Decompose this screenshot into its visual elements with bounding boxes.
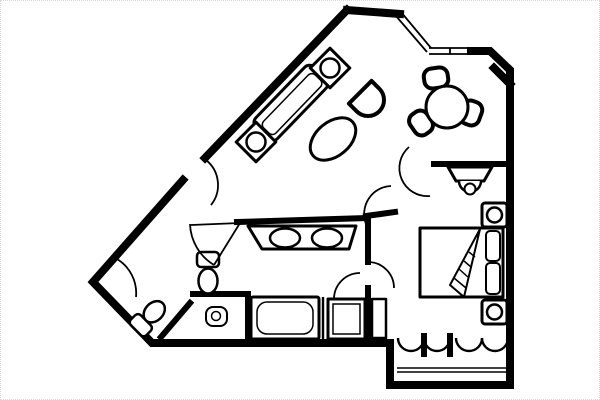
floor-plan-canvas (0, 0, 600, 400)
wc-door-swing (117, 259, 136, 297)
closet-bifold-door-1 (398, 338, 424, 351)
shower-door-swing (334, 273, 360, 299)
wc-sink (206, 307, 227, 326)
window-walls (396, 12, 472, 54)
tv-stand (448, 167, 492, 195)
closet-bifold-door-3 (456, 338, 482, 351)
furniture-layer (128, 48, 507, 372)
double-door-right-swing (399, 147, 430, 196)
toilet (197, 252, 219, 294)
oval-table (302, 109, 364, 168)
closet-rail (397, 368, 507, 372)
entry-door-swing (206, 160, 218, 205)
closet-bifold-door-2 (424, 338, 450, 351)
nightstand-lamp (482, 300, 507, 324)
dining-table (426, 86, 468, 128)
closet-bifold-door-4 (482, 338, 508, 351)
shower (328, 299, 365, 339)
linen-cabinet (372, 299, 386, 338)
nightstand-lamp (482, 203, 507, 227)
floor-plan (0, 0, 600, 400)
armchair (349, 81, 391, 123)
bedroom-bathroom-door-swing (368, 262, 394, 288)
bed (420, 228, 503, 297)
bathtub (251, 297, 319, 339)
vanity-double-sink (248, 226, 356, 249)
